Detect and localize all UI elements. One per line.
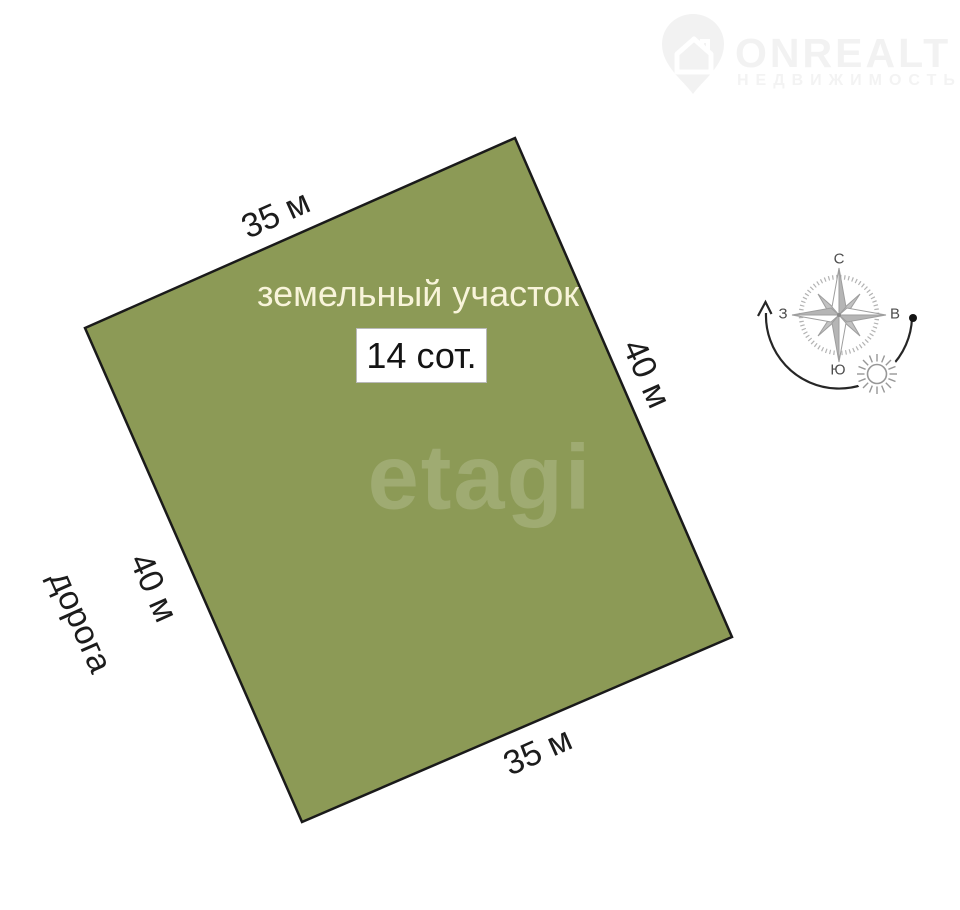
- logo-brand-text: ONREALT: [735, 30, 951, 77]
- compass-west-label: З: [778, 306, 787, 323]
- compass-rose: [792, 268, 886, 362]
- compass-south-label: Ю: [830, 362, 845, 379]
- sun-icon: [855, 352, 899, 396]
- land-plot-scheme: ONREALT НЕДВИЖИМОСТЬ 35 м 40 м 40 м 35 м…: [0, 0, 960, 910]
- logo-pin-icon: [662, 14, 724, 94]
- west-arrowhead: [758, 302, 772, 316]
- plot-title: земельный участок: [257, 273, 579, 315]
- compass-north-label: С: [834, 251, 845, 268]
- logo-tagline-text: НЕДВИЖИМОСТЬ: [737, 72, 960, 90]
- area-badge-text: 14 сот.: [366, 335, 476, 377]
- etagi-watermark: etagi: [368, 426, 593, 531]
- east-dot: [909, 314, 917, 322]
- compass-east-label: В: [890, 306, 900, 323]
- area-badge: 14 сот.: [356, 328, 487, 383]
